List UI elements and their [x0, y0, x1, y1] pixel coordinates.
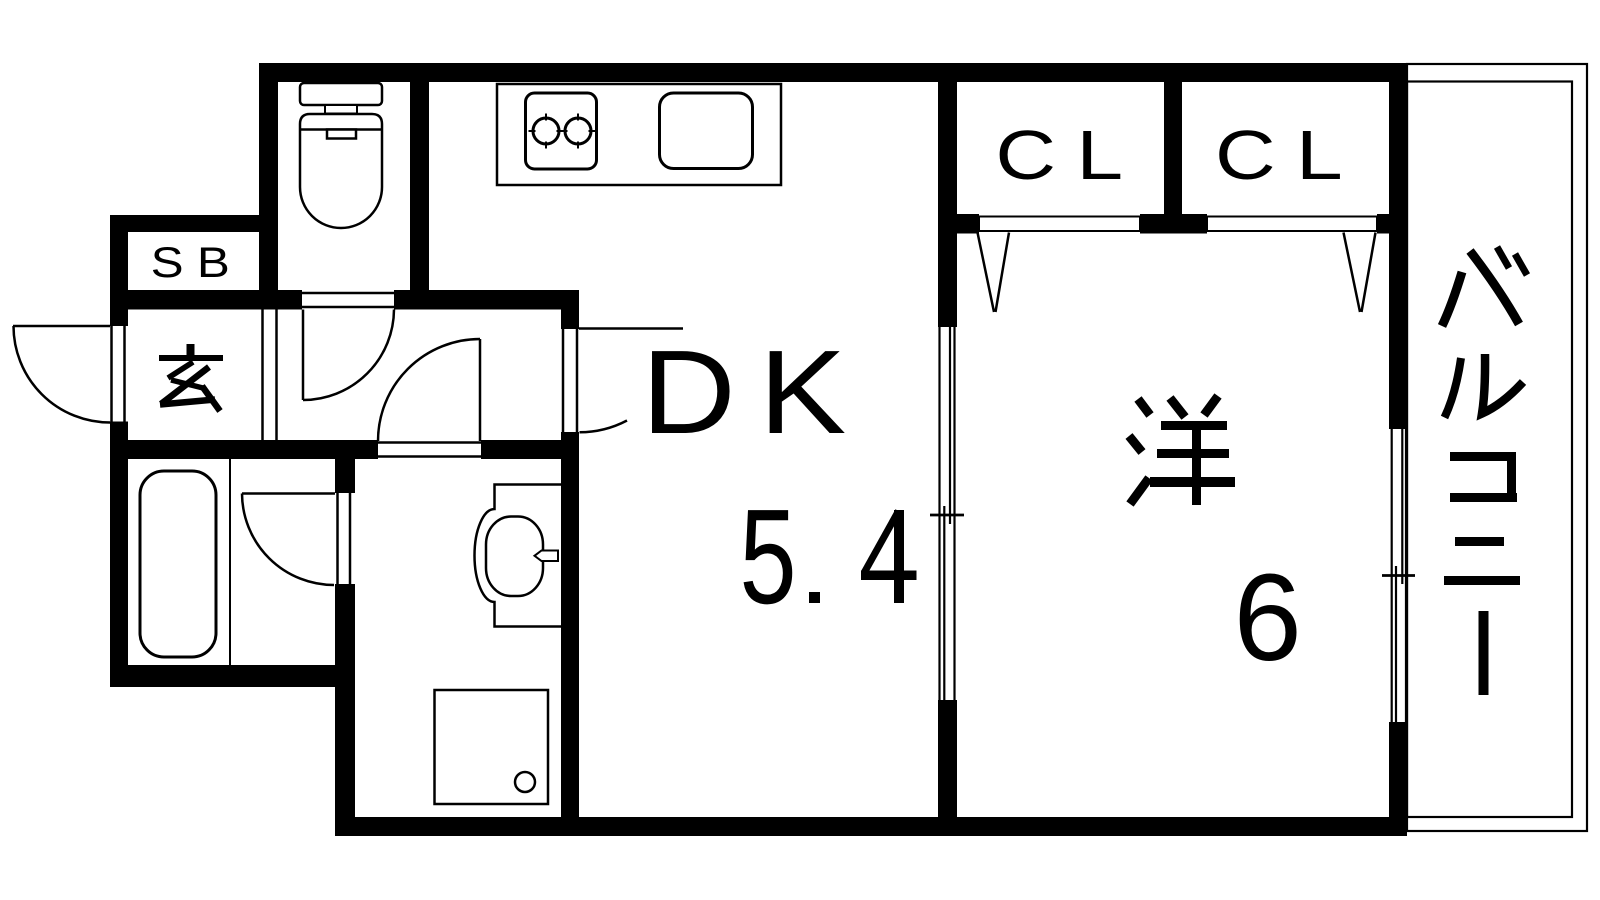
svg-text:SB: SB: [151, 238, 243, 286]
svg-text:DK: DK: [641, 326, 869, 459]
svg-text:5: 5: [739, 481, 796, 632]
svg-text:CL: CL: [1215, 117, 1363, 195]
svg-text:6: 6: [1234, 550, 1302, 687]
svg-text:CL: CL: [995, 117, 1143, 195]
